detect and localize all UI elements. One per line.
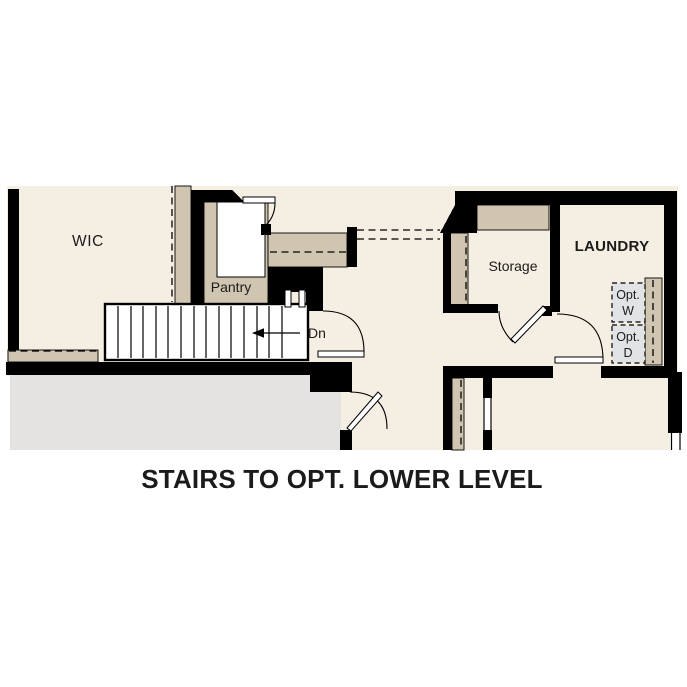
floor-plan-page: Dn Opt. W O <box>0 0 687 687</box>
stair-opening-cased-left <box>285 290 291 307</box>
wall-top <box>455 191 677 205</box>
wall-lower-hall <box>443 378 452 450</box>
wall-garage-corner <box>310 375 352 392</box>
stair-door-leaf <box>318 351 364 357</box>
bottom-right-window <box>670 433 682 450</box>
storage-left-furr-wall <box>450 233 468 305</box>
wall-pantry-top-cap <box>191 190 232 202</box>
opt-washer-label-line2: W <box>622 304 634 318</box>
lower-door-jamb <box>340 430 352 450</box>
laundry-door-leaf <box>555 357 603 363</box>
lower-hall-furr-wall <box>452 378 464 450</box>
wall-lower-window-bottom <box>483 430 492 450</box>
lower-cased-opening <box>483 398 492 430</box>
wall-laundry-bottom-right <box>601 366 677 378</box>
kitchen-cabinet-run <box>268 233 347 267</box>
wall-above-stairs <box>268 267 323 292</box>
plan-caption: STAIRS TO OPT. LOWER LEVEL <box>141 464 542 494</box>
wall-left-exterior <box>8 189 19 350</box>
opt-dryer-label-line2: D <box>623 346 632 360</box>
stairs-direction-label: Dn <box>308 325 326 341</box>
lower-hall-floor <box>341 375 680 450</box>
label-laundry: LAUNDRY <box>575 238 650 255</box>
opt-dryer-label-line1: Opt. <box>616 330 640 344</box>
wall-laundry-left <box>550 205 560 312</box>
wall-cabinet-end <box>347 227 357 267</box>
wall-storage-bottom <box>443 304 498 313</box>
wall-pantry-left <box>191 190 204 306</box>
wic-window-sill <box>8 350 98 362</box>
label-storage: Storage <box>488 258 537 274</box>
label-pantry: Pantry <box>211 279 251 295</box>
wall-laundry-bottom-left <box>443 366 553 378</box>
floor-plan-drawing: Dn Opt. W O <box>0 0 687 687</box>
pantry-alcove <box>217 202 265 277</box>
wall-stairwell-bottom <box>6 362 352 375</box>
pantry-door-leaf <box>243 197 275 203</box>
wall-right-exterior <box>664 191 677 378</box>
wall-bottom-right <box>668 372 682 433</box>
label-wic: WIC <box>72 233 104 250</box>
wall-storage-left <box>443 233 451 305</box>
opt-washer-label-line1: Opt. <box>616 288 640 302</box>
garage-area <box>10 375 341 450</box>
pantry-left-furr-wall <box>175 186 191 305</box>
storage-upper-cabinet <box>477 205 549 230</box>
wall-lower-window-top <box>483 378 492 398</box>
stair-opening-cased-right <box>299 290 305 307</box>
